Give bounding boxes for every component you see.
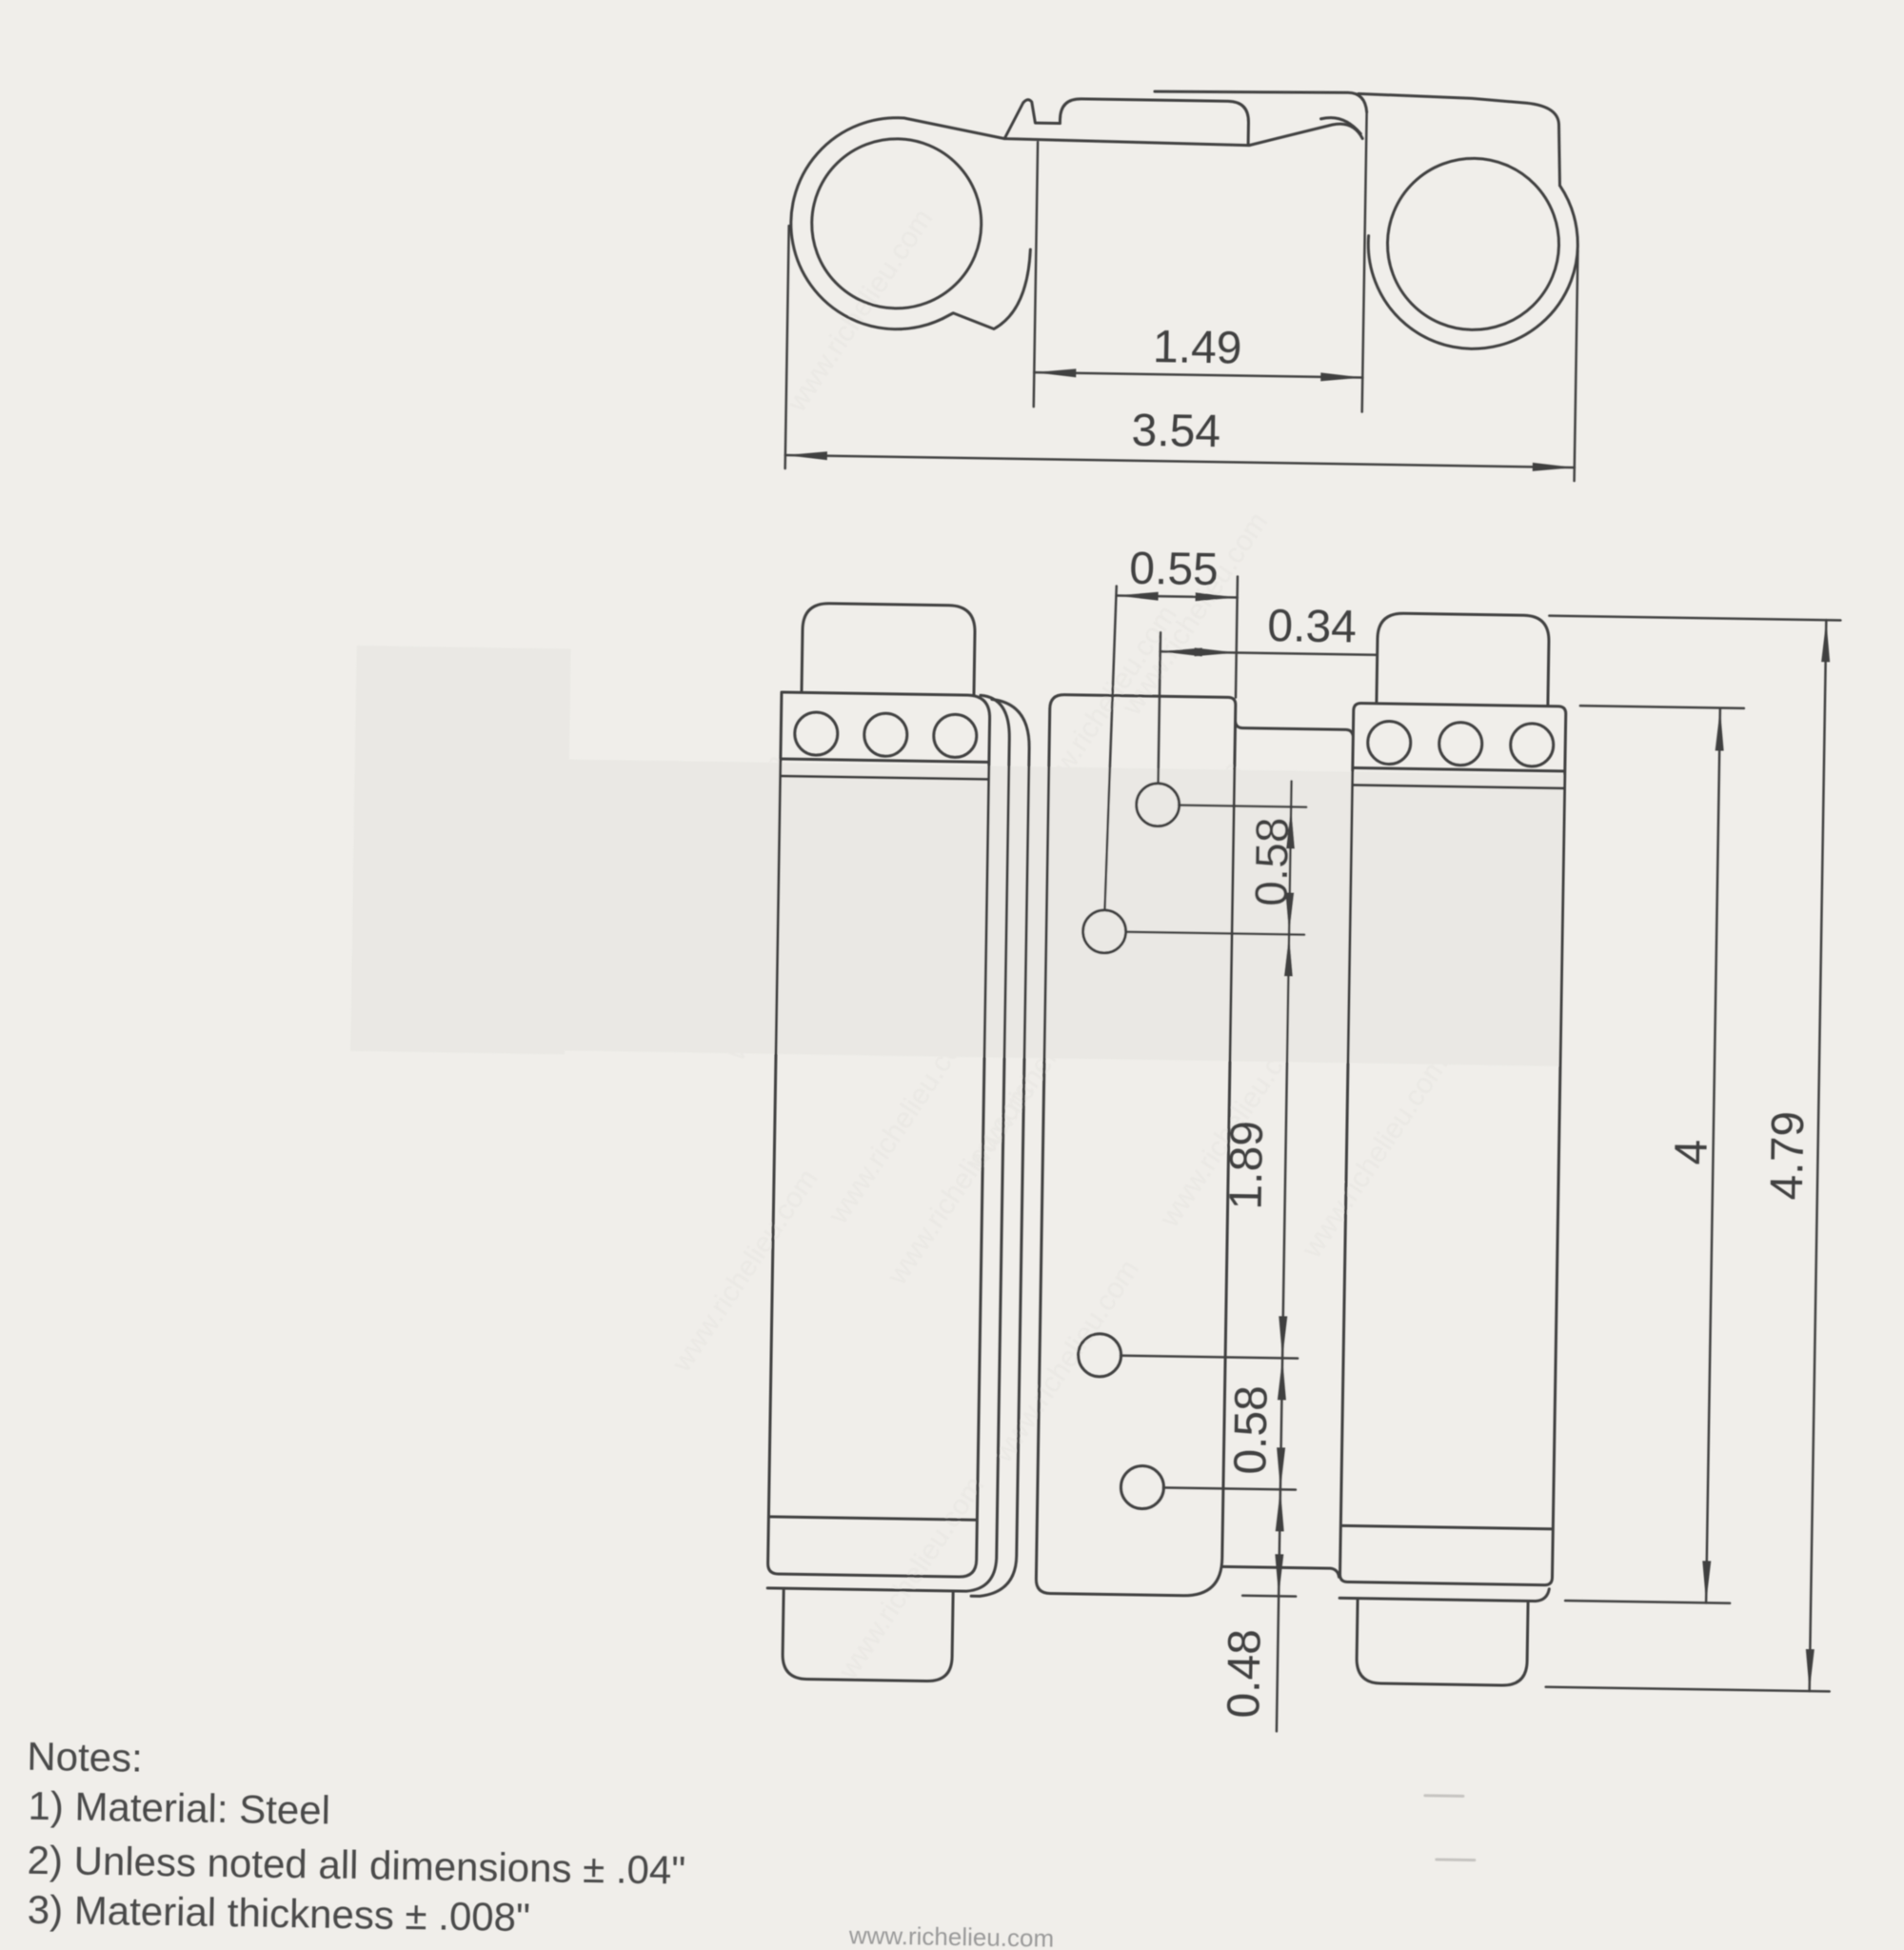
svg-text:0.55: 0.55 [1129, 544, 1219, 595]
svg-text:4: 4 [1666, 1139, 1716, 1165]
svg-text:3) Material thickness ± .008": 3) Material thickness ± .008" [27, 1887, 530, 1940]
svg-text:0.58: 0.58 [1247, 817, 1299, 906]
svg-text:3.54: 3.54 [1131, 406, 1220, 457]
svg-text:1.89: 1.89 [1221, 1121, 1273, 1210]
svg-text:0.58: 0.58 [1225, 1385, 1277, 1475]
svg-text:Notes:: Notes: [27, 1734, 143, 1781]
svg-text:0.48: 0.48 [1219, 1629, 1270, 1719]
svg-text:1) Material: Steel: 1) Material: Steel [28, 1783, 330, 1833]
svg-text:1.49: 1.49 [1153, 322, 1242, 373]
svg-text:www.richelieu.com: www.richelieu.com [848, 1920, 1055, 1950]
svg-text:0.34: 0.34 [1267, 601, 1357, 652]
svg-text:4.79: 4.79 [1762, 1111, 1814, 1201]
